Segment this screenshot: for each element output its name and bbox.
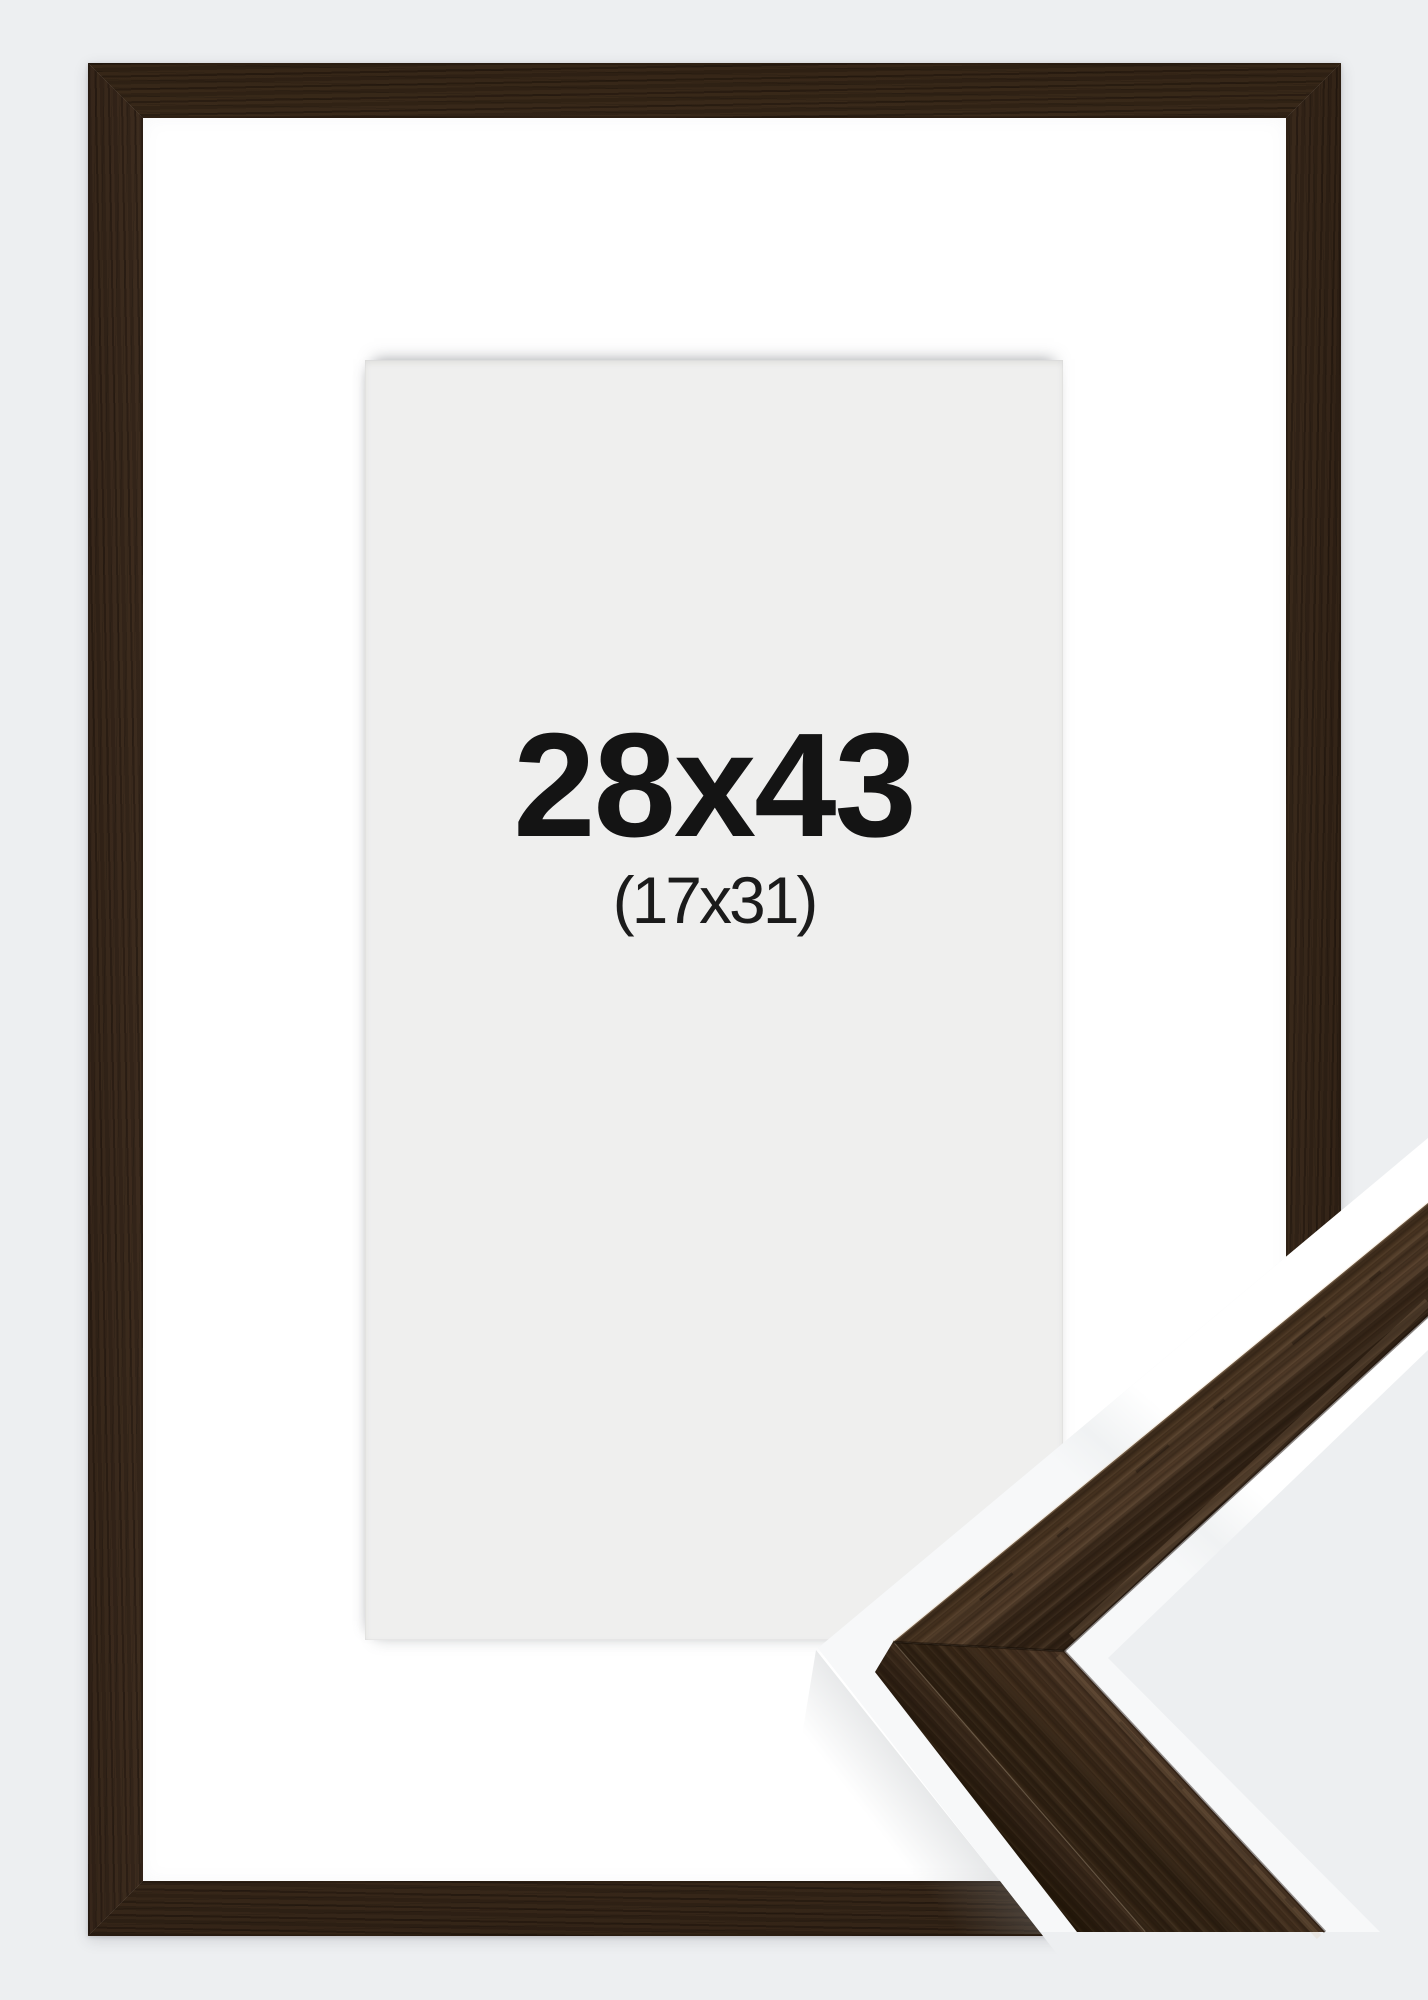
product-photo: 28x43 (17x31) (0, 0, 1428, 2000)
corner-sample-overlay (0, 0, 1428, 2000)
